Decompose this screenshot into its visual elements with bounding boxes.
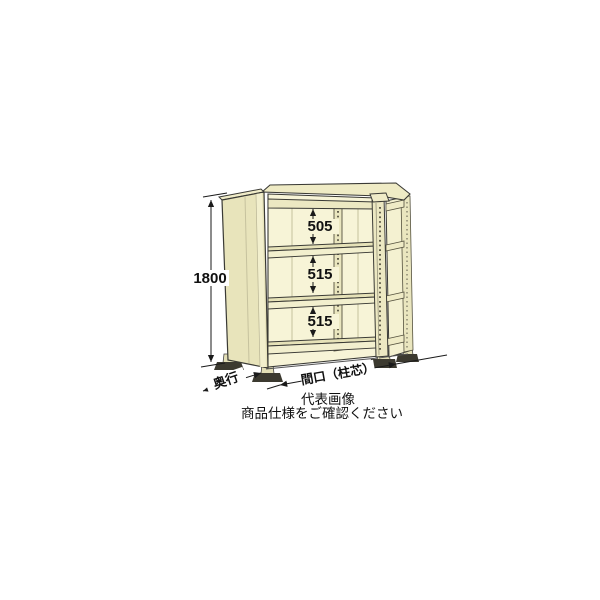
caption-check-specs: 商品仕様をご確認ください — [241, 406, 403, 421]
catalog-image: 1800 505 515 515 奥行 間口（柱芯） 代表画像 — [0, 0, 600, 600]
depth-label: 奥行 — [211, 369, 240, 392]
shelf-gap-top-label: 505 — [307, 218, 332, 235]
shelf-gap-bottom-label: 515 — [307, 313, 332, 330]
right-side-frame — [386, 196, 413, 357]
height-dimension-label: 1800 — [193, 270, 226, 287]
product-illustration: 1800 505 515 515 奥行 間口（柱芯） 代表画像 — [0, 0, 600, 600]
shelf-gap-middle-label: 515 — [307, 266, 332, 283]
caption-representative-image: 代表画像 — [301, 392, 355, 407]
depth-dimension: 奥行 — [203, 367, 261, 394]
post-cap — [370, 193, 389, 202]
extension-line-left — [267, 385, 280, 389]
width-label: 間口（柱芯） — [300, 360, 376, 388]
